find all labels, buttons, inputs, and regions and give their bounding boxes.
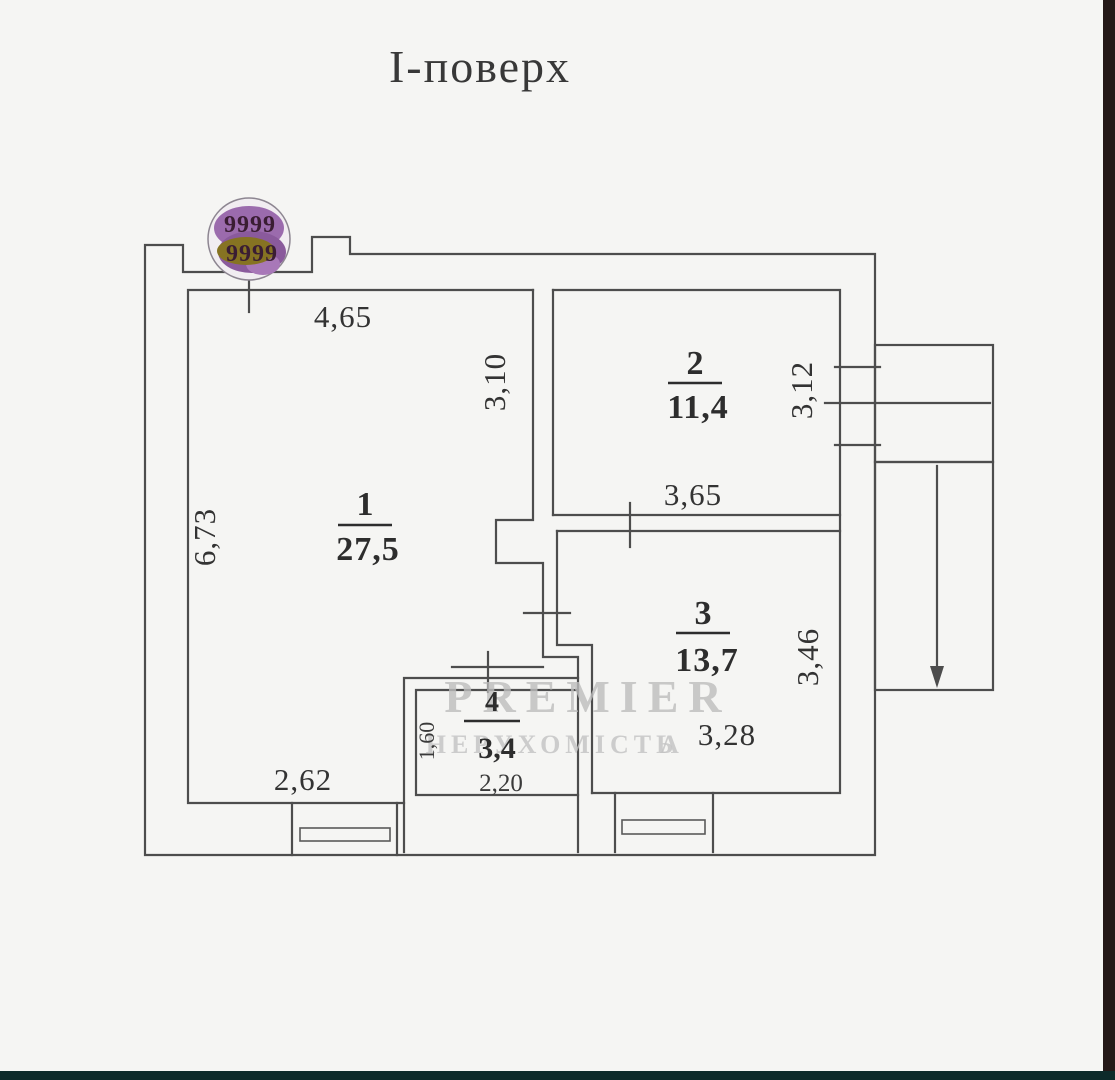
dim-room4-height: 1,60: [414, 722, 439, 761]
scan-edge-right: [1103, 0, 1115, 1080]
dim-top-width: 4,65: [314, 299, 372, 334]
watermark: PREMIER НЕРУХОМІСТЬ Λ: [426, 671, 732, 759]
floor-plan-canvas: І-поверх: [0, 0, 1115, 1080]
dimension-labels: 4,65 3,10 6,73 3,65 3,12 3,46 3,28 2,62 …: [187, 299, 825, 797]
room3-area: 13,7: [675, 642, 739, 679]
dim-room1-bottom-width: 2,62: [274, 762, 332, 797]
scanned-floor-plan-page: І-поверх: [0, 0, 1115, 1080]
window-room3-jambs: [615, 793, 713, 852]
stair-box: [875, 462, 993, 690]
room1-area: 27,5: [336, 531, 400, 568]
room4-area: 3,4: [478, 732, 516, 765]
room-label-3: 3 13,7: [675, 595, 739, 679]
room2-number: 2: [687, 345, 704, 382]
room2-area: 11,4: [667, 389, 729, 426]
door-opening-ticks: [249, 272, 990, 692]
dim-room2-height: 3,12: [784, 361, 819, 419]
balcony-and-stairs: [875, 345, 993, 690]
dim-room3-width: 3,28: [698, 717, 756, 752]
dim-room1-upper-height: 3,10: [477, 353, 512, 411]
watermark-subtitle: НЕРУХОМІСТЬ: [426, 730, 679, 759]
scan-edge-bottom: [0, 1071, 1115, 1080]
room3-number: 3: [695, 595, 712, 632]
stamp-number-bottom: 9999: [226, 241, 278, 267]
room-label-2: 2 11,4: [667, 345, 729, 426]
window-room1-glazing: [300, 828, 390, 841]
room4-number: 4: [485, 687, 499, 718]
stamp-number-top: 9999: [224, 212, 276, 238]
dim-room2-width: 3,65: [664, 477, 722, 512]
stamp: 9999 9999: [208, 198, 290, 280]
dim-room1-height: 6,73: [187, 508, 222, 566]
room-label-1: 1 27,5: [336, 486, 400, 568]
dim-room4-width: 2,20: [479, 770, 523, 797]
floor-title: І-поверх: [389, 41, 571, 92]
room1-number: 1: [357, 486, 374, 523]
watermark-mark: Λ: [660, 730, 684, 759]
window-room1-jambs: [292, 803, 397, 855]
window-room3-glazing: [622, 820, 705, 834]
stair-arrow-head: [930, 666, 944, 688]
dim-room3-height: 3,46: [790, 628, 825, 686]
